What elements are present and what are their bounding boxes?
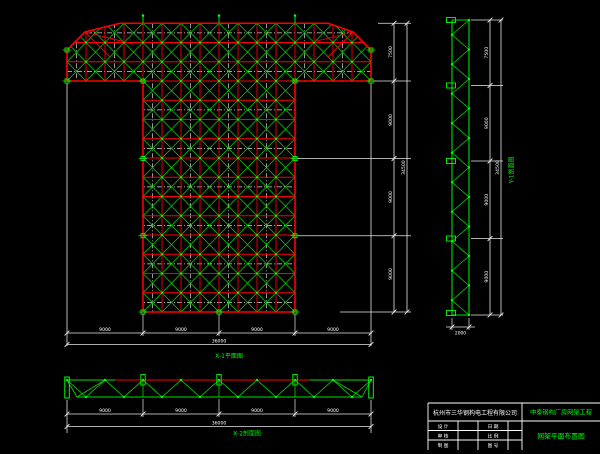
svg-text:9000: 9000: [327, 408, 339, 414]
drawing-background: [0, 0, 600, 450]
svg-text:9000: 9000: [484, 194, 490, 206]
bottom-truss-title: X-2剖面图: [233, 430, 261, 438]
titleblock-label-date: 日 期: [488, 424, 499, 430]
svg-text:36000: 36000: [212, 339, 227, 345]
svg-text:7500: 7500: [388, 46, 394, 58]
svg-text:34500: 34500: [495, 160, 501, 175]
svg-text:9000: 9000: [484, 271, 490, 283]
svg-text:9000: 9000: [99, 327, 111, 333]
svg-text:9000: 9000: [388, 268, 394, 280]
svg-text:9000: 9000: [388, 114, 394, 126]
drawing-title: 网架平面布置图: [537, 432, 585, 441]
svg-text:9000: 9000: [327, 327, 339, 333]
cad-drawing-canvas: 9000900090009000360007500900090009000345…: [0, 0, 600, 450]
svg-text:2000: 2000: [455, 331, 466, 337]
svg-text:9000: 9000: [175, 408, 187, 414]
side-truss-title: Y-1剖面图: [508, 157, 516, 185]
titleblock-label-design: 设 计: [438, 423, 449, 430]
project-name: 中泰钢构厂房网架工程: [530, 409, 592, 417]
titleblock-label-scale: 比 例: [488, 433, 499, 440]
svg-text:9000: 9000: [251, 327, 263, 333]
svg-text:9000: 9000: [388, 191, 394, 203]
svg-text:36000: 36000: [212, 421, 227, 427]
plan-view-title: X-1平面图: [215, 353, 243, 360]
svg-text:9000: 9000: [175, 327, 187, 333]
titleblock-label-draft: 制 图: [438, 442, 449, 449]
svg-text:34500: 34500: [401, 160, 407, 175]
titleblock-label-check: 审 核: [438, 433, 449, 440]
svg-text:7500: 7500: [484, 47, 490, 59]
svg-text:9000: 9000: [484, 117, 490, 129]
svg-text:9000: 9000: [99, 408, 111, 414]
svg-text:9000: 9000: [251, 408, 263, 414]
company-name: 杭州市三华钢构电工程有限公司: [433, 409, 517, 417]
titleblock-label-number: 图 号: [488, 443, 499, 449]
